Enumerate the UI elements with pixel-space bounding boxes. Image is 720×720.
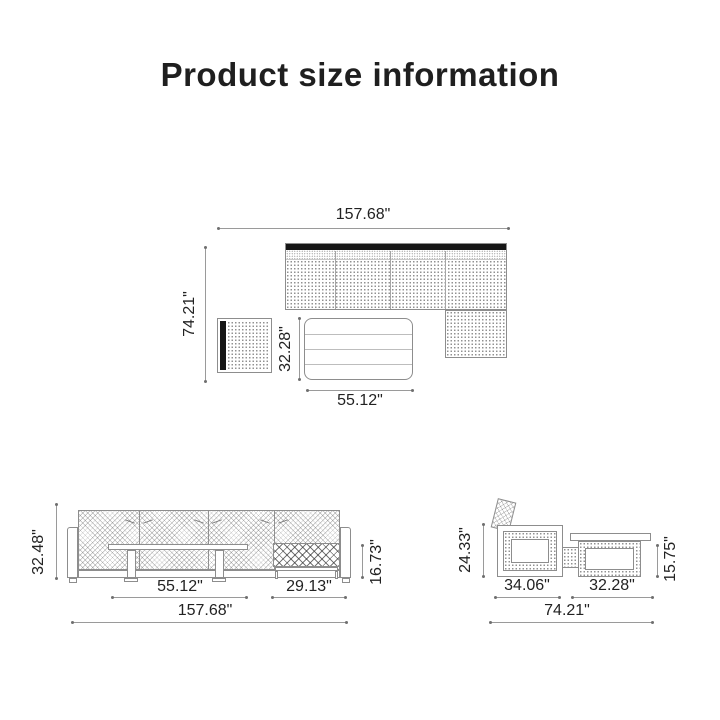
dim-line-side-table-width <box>572 597 653 598</box>
dim-label-side-overall-depth: 74.21" <box>544 602 590 620</box>
sofa-side-view <box>497 525 563 577</box>
coffee-table-side-top <box>570 533 651 541</box>
dim-line-side-sofa-height <box>483 524 484 577</box>
dim-label-side-sofa-depth: 34.06" <box>504 577 550 595</box>
dim-line-side-sofa-depth <box>495 597 560 598</box>
dim-line-side-table-height <box>657 545 658 577</box>
coffee-table-side-panel <box>585 548 634 570</box>
dim-line-side-overall-depth <box>490 622 653 623</box>
dim-label-side-table-height: 15.75" <box>662 536 680 582</box>
dim-label-side-sofa-height: 24.33" <box>457 527 475 573</box>
product-size-diagram: Product size information 157.68" 74.21" <box>0 0 720 720</box>
coffee-table-side-view <box>578 541 641 577</box>
side-view: 24.33" 34.06" 32.28" 74.21" 15.75" <box>0 0 720 720</box>
dim-label-side-table-width: 32.28" <box>589 577 635 595</box>
sofa-side-panel <box>511 539 549 563</box>
